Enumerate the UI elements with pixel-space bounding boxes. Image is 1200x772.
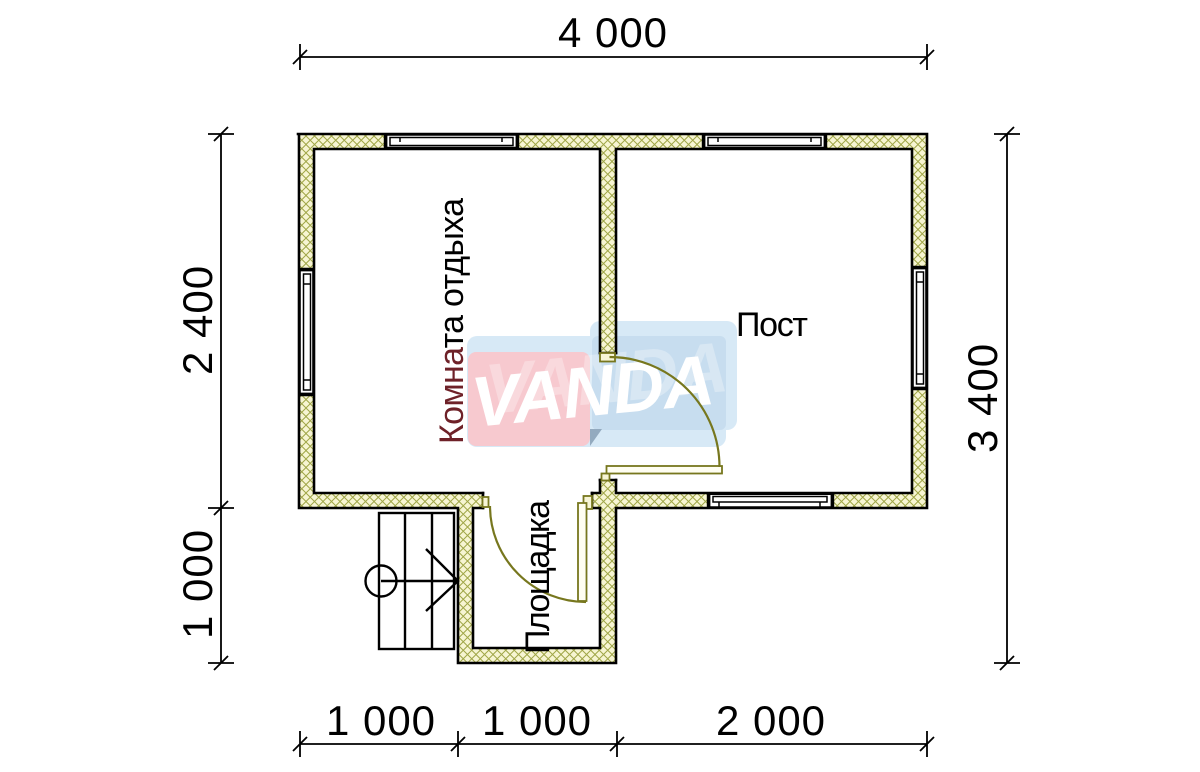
svg-text:Пост: Пост xyxy=(736,306,808,344)
svg-text:1 000: 1 000 xyxy=(326,697,436,744)
svg-text:Комната отдыха: Комната отдыха xyxy=(433,198,471,444)
svg-text:2 000: 2 000 xyxy=(716,697,826,744)
svg-text:1 000: 1 000 xyxy=(482,697,592,744)
svg-text:3 400: 3 400 xyxy=(959,343,1006,453)
svg-text:2 400: 2 400 xyxy=(174,265,221,375)
svg-text:Площадка: Площадка xyxy=(519,500,557,654)
svg-text:1 000: 1 000 xyxy=(174,529,221,639)
svg-text:4 000: 4 000 xyxy=(558,9,668,56)
